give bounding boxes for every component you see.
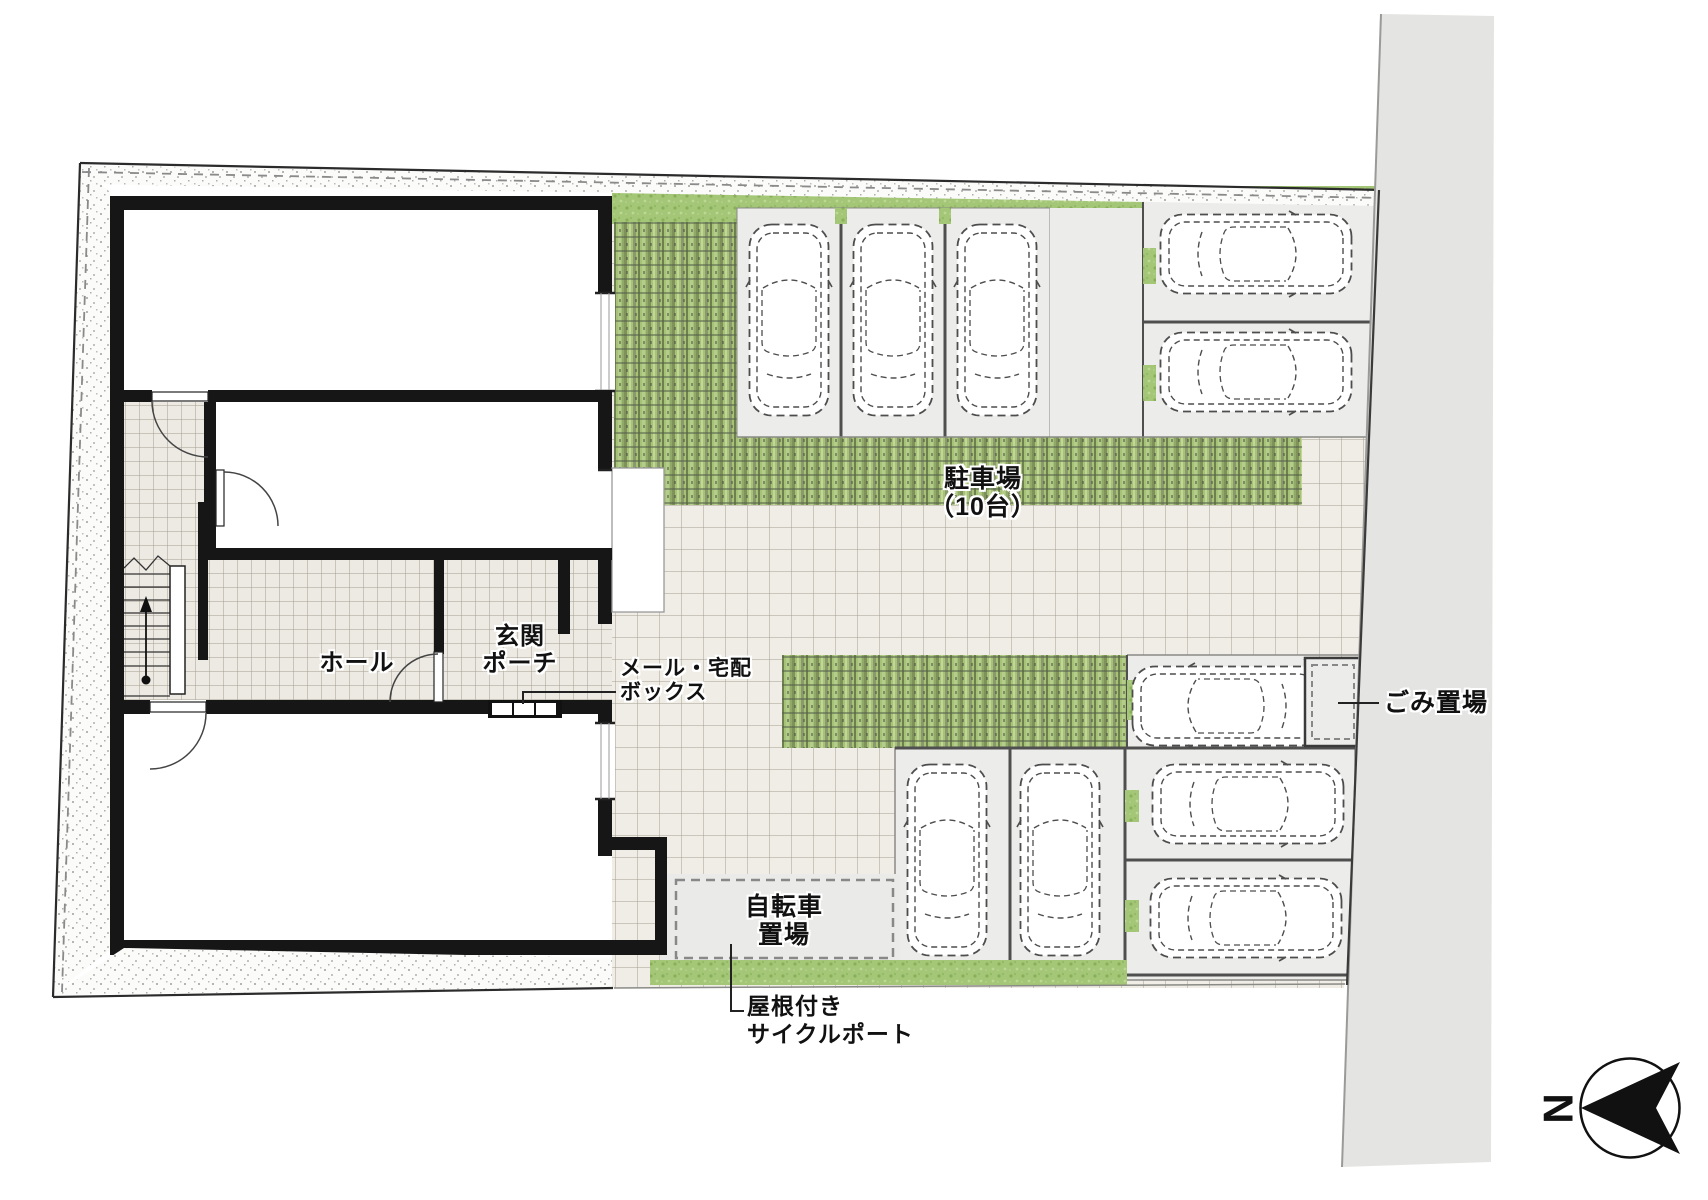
label-cycleport-line1: 屋根付き (747, 993, 914, 1021)
building (110, 196, 667, 955)
car-icon (850, 225, 936, 416)
label-porch-line2: ポーチ (483, 651, 558, 678)
label-parking-line2: （10台） (929, 493, 1037, 521)
label-trash: ごみ置場 (1384, 689, 1488, 717)
label-bicycle-line2: 置場 (745, 921, 823, 949)
car-icon (1153, 761, 1344, 847)
compass-north-label: N (1534, 1092, 1581, 1123)
car-icon (904, 765, 990, 956)
label-hall: ホール (320, 651, 395, 678)
label-mailbox-line1: メール・宅配 (620, 657, 752, 681)
grass-strip-bottom (650, 960, 1127, 985)
label-mailbox-line2: ボックス (620, 681, 752, 705)
label-bicycle: 自転車 置場 (745, 893, 823, 949)
label-bicycle-line1: 自転車 (745, 893, 823, 921)
label-parking: 駐車場 （10台） (929, 465, 1037, 521)
car-icon (954, 225, 1040, 416)
label-mailbox: メール・宅配 ボックス (620, 657, 752, 704)
label-porch-line1: 玄関 (483, 624, 558, 651)
label-parking-line1: 駐車場 (929, 465, 1037, 493)
label-porch: 玄関 ポーチ (483, 624, 558, 678)
car-icon (1161, 329, 1352, 415)
car-icon (746, 225, 832, 416)
car-icon (1161, 211, 1352, 297)
mailbox-units (488, 700, 562, 718)
car-icon (1017, 765, 1103, 956)
paver-block-middle (782, 655, 1127, 748)
car-icon (1151, 875, 1342, 961)
car-icon (1133, 663, 1324, 749)
label-cycleport-line2: サイクルポート (747, 1021, 914, 1049)
site-plan-page: 駐車場 （10台） ホール 玄関 ポーチ メール・宅配 ボックス ごみ置場 自転… (0, 0, 1708, 1200)
north-compass-icon (1581, 1059, 1681, 1158)
label-cycleport: 屋根付き サイクルポート (747, 993, 914, 1048)
